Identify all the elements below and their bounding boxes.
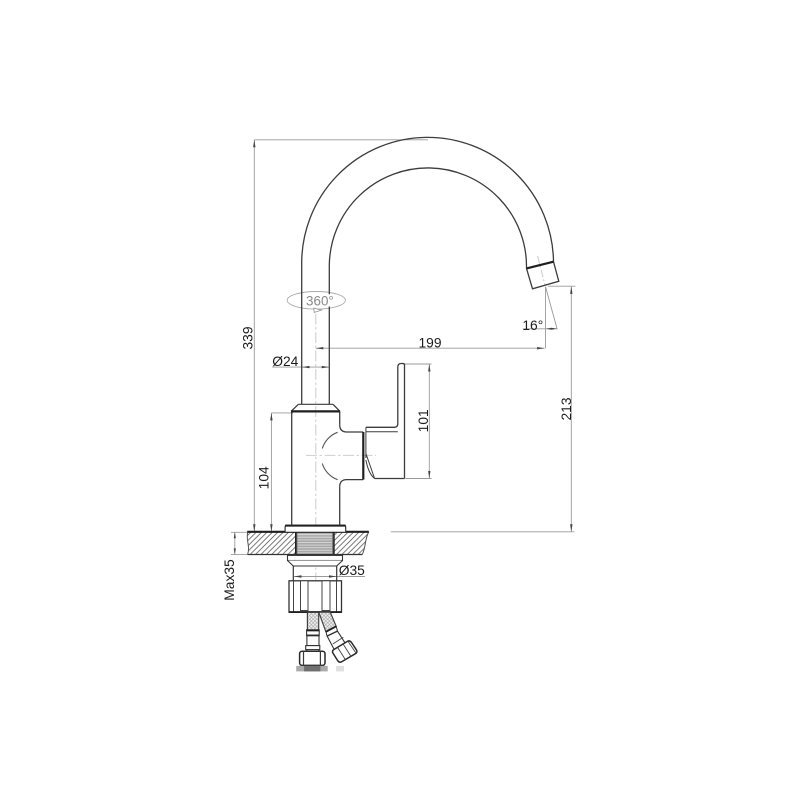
svg-text:104: 104: [257, 466, 272, 489]
svg-text:213: 213: [559, 397, 574, 420]
svg-text:Max35: Max35: [222, 559, 237, 601]
svg-text:Ø35: Ø35: [339, 563, 365, 578]
svg-text:101: 101: [416, 409, 431, 432]
svg-text:360°: 360°: [306, 293, 334, 308]
svg-text:199: 199: [418, 335, 441, 350]
svg-text:339: 339: [241, 326, 256, 349]
svg-text:16°: 16°: [522, 318, 543, 333]
svg-text:Ø24: Ø24: [272, 354, 298, 369]
